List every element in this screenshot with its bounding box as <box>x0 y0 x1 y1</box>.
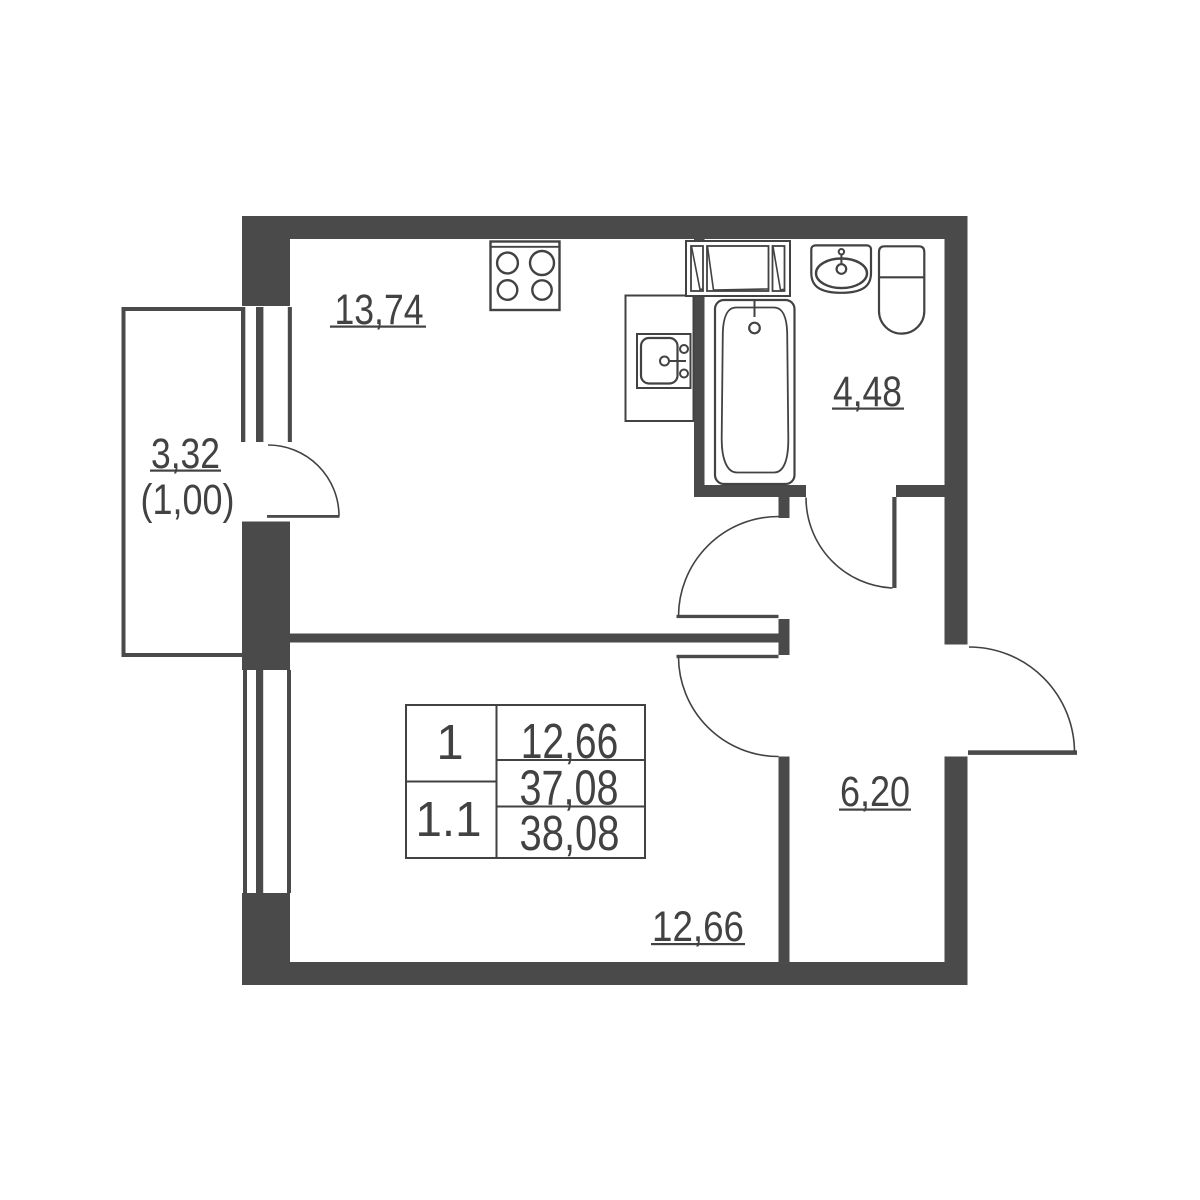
svg-text:(1,00): (1,00) <box>141 476 235 524</box>
svg-text:38,08: 38,08 <box>520 807 620 861</box>
svg-text:1.1: 1.1 <box>416 793 482 847</box>
svg-text:1: 1 <box>436 716 463 770</box>
